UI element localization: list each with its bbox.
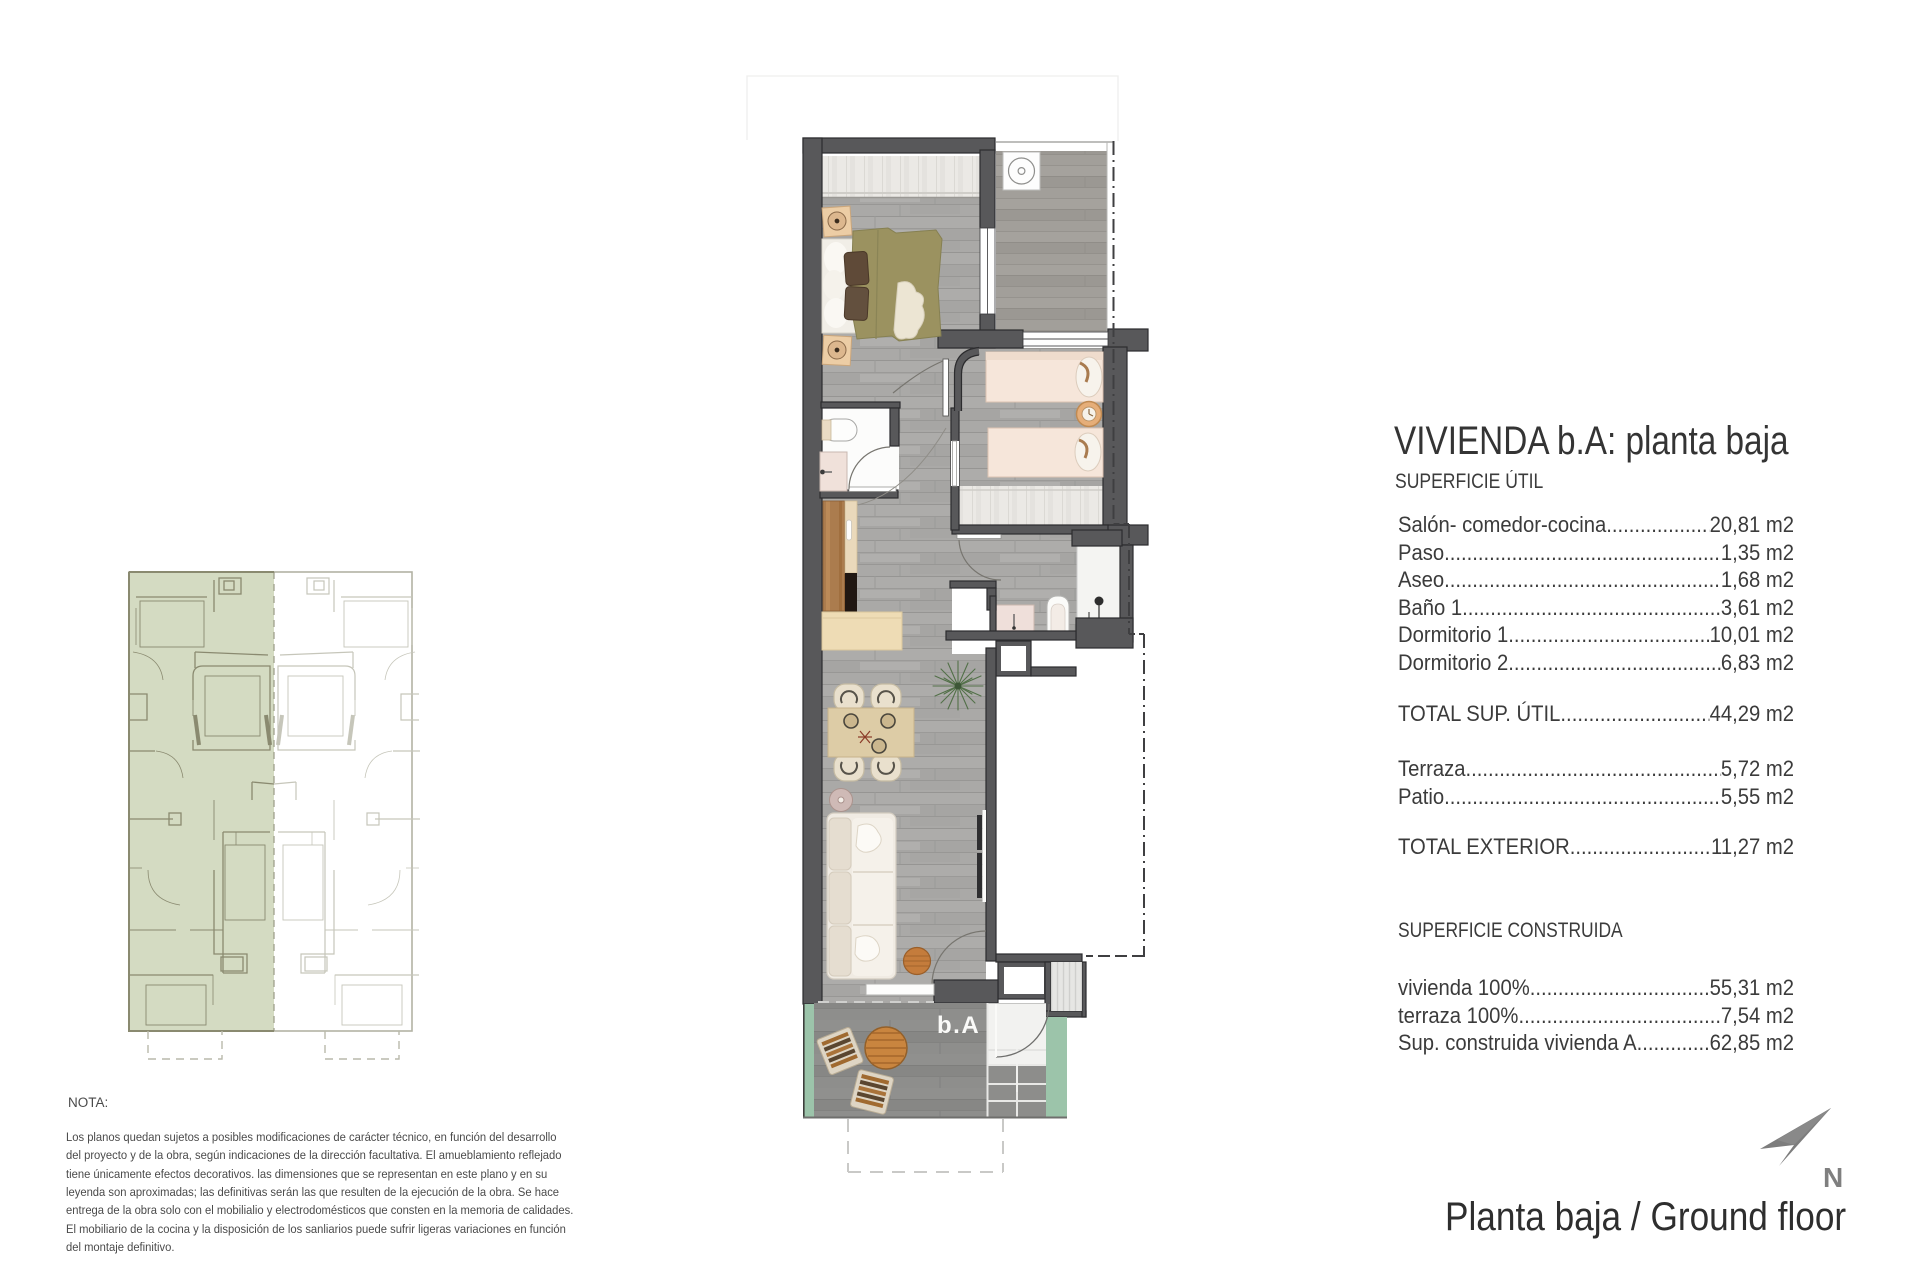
svg-text:b.A: b.A [937, 1012, 980, 1039]
svg-text:N: N [1823, 1162, 1843, 1193]
